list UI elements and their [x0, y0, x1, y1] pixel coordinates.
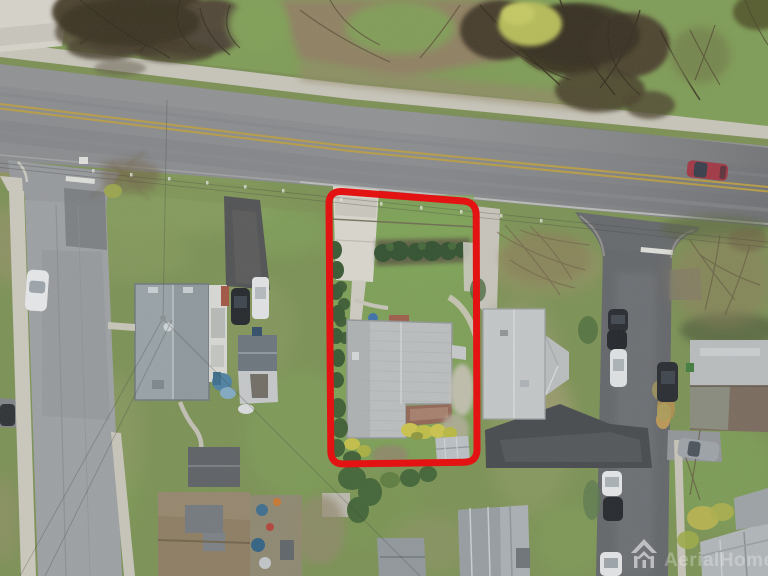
svg-text:AerialHomes: AerialHomes [664, 550, 768, 571]
